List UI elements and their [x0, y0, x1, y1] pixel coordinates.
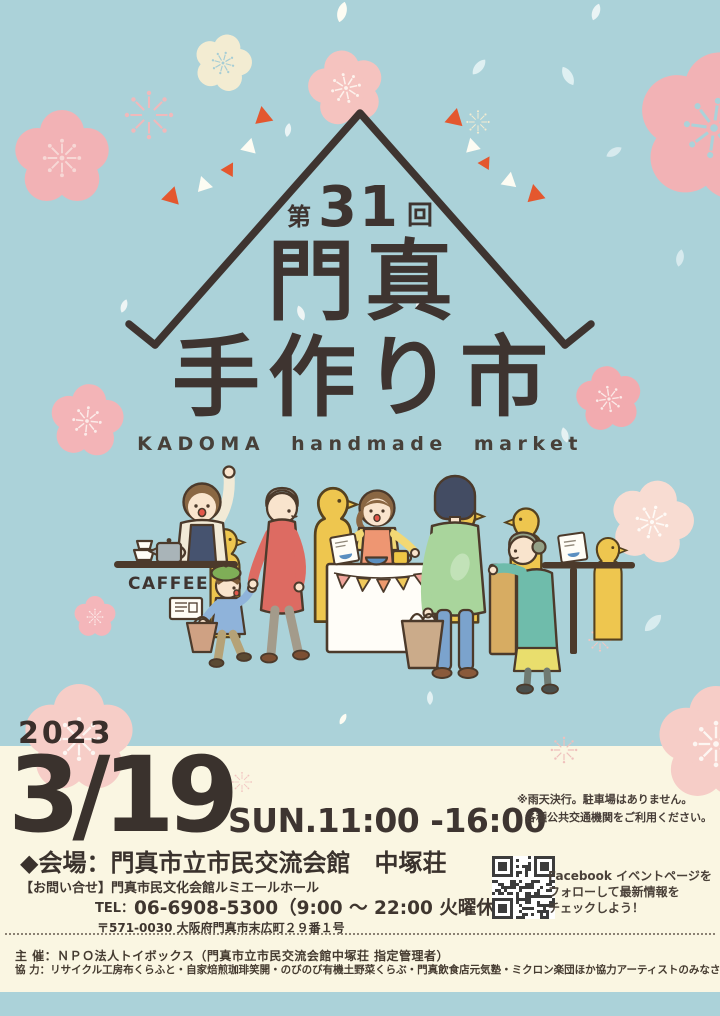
tel-label: TEL：: [95, 901, 134, 916]
cream-flower-icon: [187, 27, 258, 98]
cafe-sign-text: CAFFEE: [128, 574, 209, 594]
market-illustration: CAFFEE: [90, 462, 635, 697]
note-line-1: ※雨天決行。駐車場はありません。: [517, 793, 692, 806]
time-label: SUN.11:00 -16:00: [228, 801, 546, 840]
poster: 第 31 回 門真 手作り市 KADOMA handmade market: [0, 0, 720, 1016]
edition-prefix: 第: [287, 197, 311, 232]
petal-icon: [327, 0, 356, 27]
edition-suffix: 回: [407, 195, 433, 232]
background-bottom-blue-band: [0, 992, 720, 1016]
edition-badge: 第 31 回: [0, 180, 720, 236]
note-line-2: 各種公共交通機関をご利用ください。: [517, 809, 712, 827]
petal-icon: [635, 605, 672, 642]
facebook-note-line-1: Facebook イベントページを: [548, 869, 712, 885]
weather-note: ※雨天決行。駐車場はありません。 各種公共交通機関をご利用ください。: [517, 791, 712, 826]
facebook-note-line-3: チェックしよう！: [548, 901, 712, 917]
poster-title-line2: 手作り市: [0, 334, 720, 422]
date-label: 3/19: [8, 748, 231, 844]
tel-number: 06-6908-5300（9:00 ～ 22:00 火曜休館）: [134, 898, 532, 919]
edition-number: 31: [318, 180, 400, 236]
petal-icon: [333, 709, 352, 728]
poster-title-kanji: 門真: [0, 234, 720, 331]
petal-icon: [464, 52, 495, 83]
facebook-note-line-2: フォローして最新情報を: [548, 885, 712, 901]
facebook-note: Facebook イベントページを フォローして最新情報を チェックしよう！: [548, 869, 712, 917]
cooperation-line: 協 力：リサイクル工房布くらふと・自家焙煎珈琲笑開・のびのび有機土野菜くらぶ・門…: [15, 962, 720, 977]
petal-icon: [583, 0, 609, 25]
tel-line: TEL：06-6908-5300（9:00 ～ 22:00 火曜休館）: [95, 894, 532, 920]
qr-code: [492, 856, 555, 919]
dotted-divider: [5, 933, 715, 935]
venue-line: ◆会場：門真市立市民交流会館 中塚荘: [20, 843, 446, 878]
poster-subtitle-en: KADOMA handmade market: [0, 433, 720, 455]
petal-icon: [552, 60, 585, 93]
